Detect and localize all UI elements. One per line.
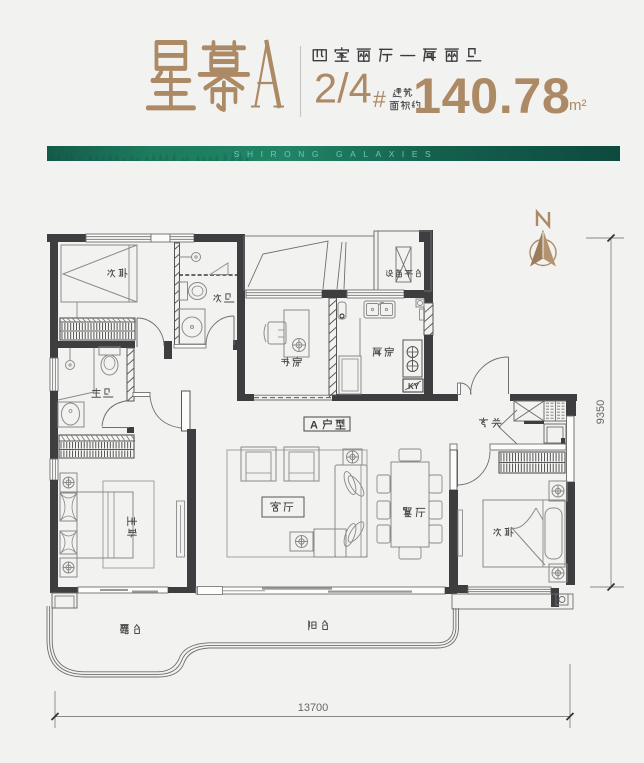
svg-text:9350: 9350 bbox=[595, 400, 607, 424]
svg-text:#: # bbox=[373, 86, 386, 112]
svg-text:SHIRONG GALAXIES: SHIRONG GALAXIES bbox=[234, 149, 438, 159]
svg-text:140.78: 140.78 bbox=[413, 67, 570, 124]
svg-text:2/4: 2/4 bbox=[314, 65, 372, 112]
svg-text:m²: m² bbox=[569, 97, 587, 114]
svg-text:KY: KY bbox=[408, 382, 420, 391]
svg-text:A: A bbox=[310, 420, 318, 432]
svg-text:13700: 13700 bbox=[298, 702, 329, 714]
